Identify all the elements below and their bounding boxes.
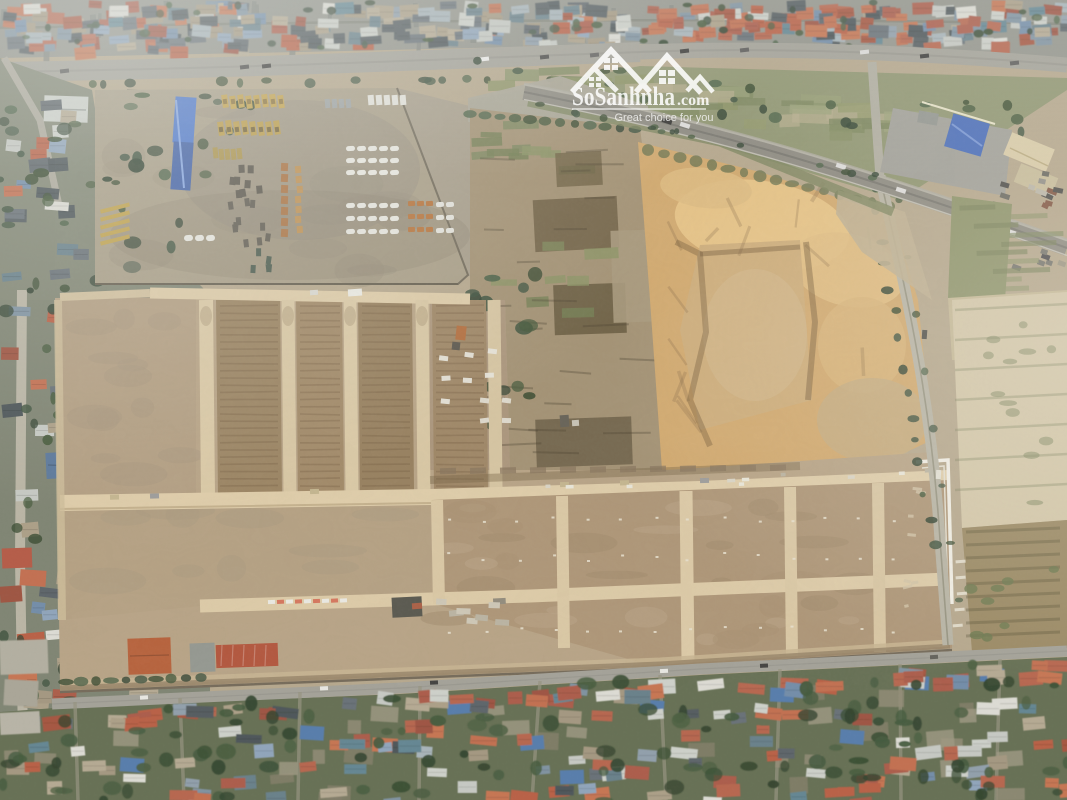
svg-text:.com: .com (677, 92, 710, 109)
svg-text:Great choice for you: Great choice for you (614, 112, 713, 124)
svg-text:SoSanhnha: SoSanhnha (572, 82, 675, 111)
